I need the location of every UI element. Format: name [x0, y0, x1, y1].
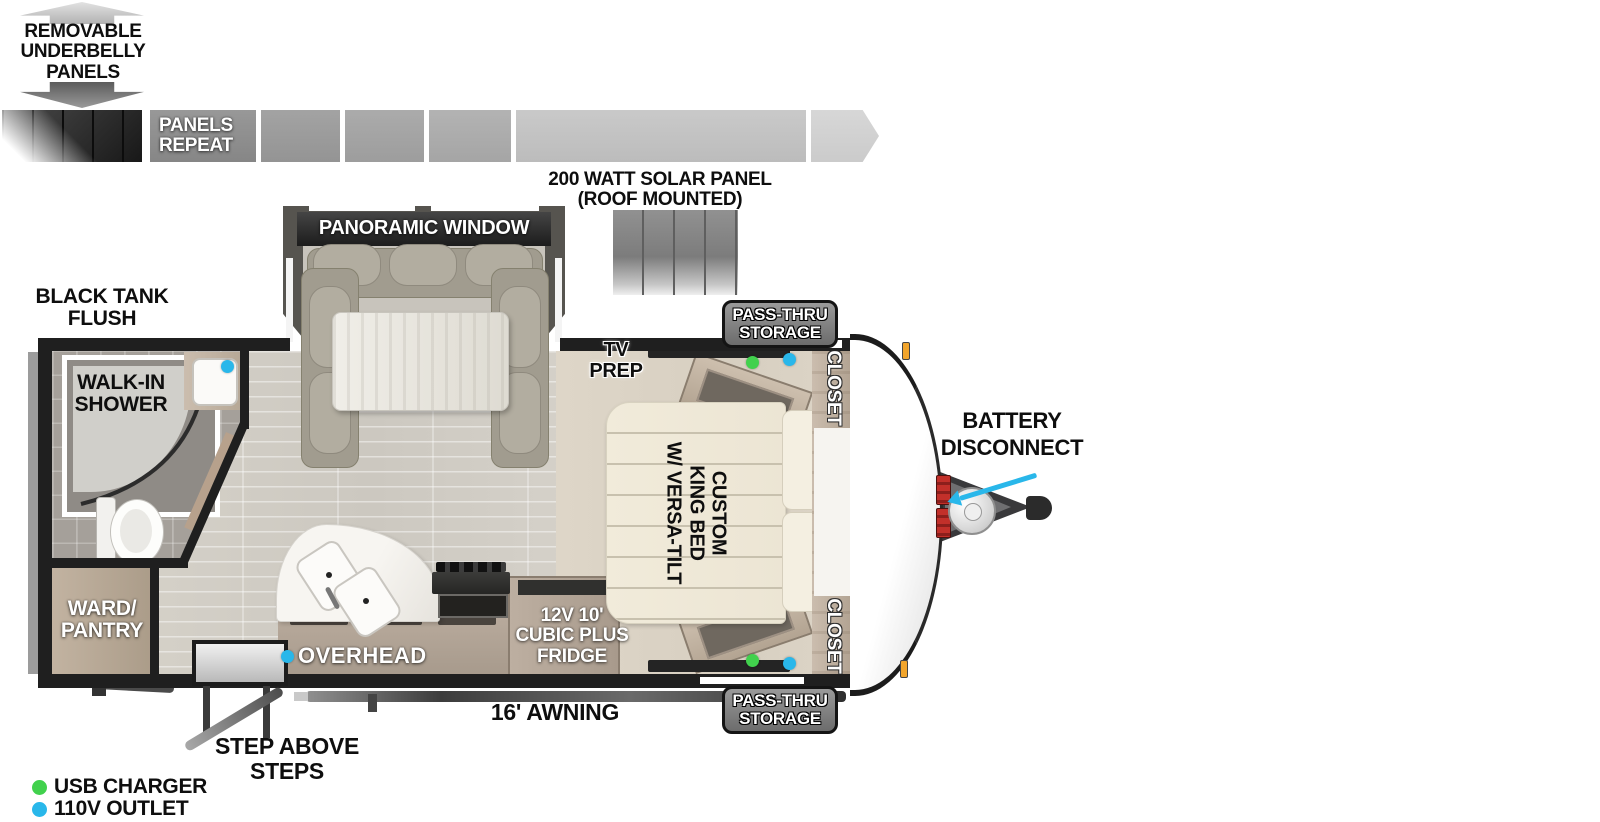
pass-thru-storage-badge-bottom: PASS-THRU STORAGE [722, 686, 838, 734]
awning-end-cap [294, 692, 308, 701]
bed-platform-edge [814, 428, 852, 596]
walk-in-shower-label: WALK-IN SHOWER [58, 372, 184, 417]
king-bed: CUSTOM KING BED W/ VERSA-TILT [606, 402, 786, 624]
110v-outlet-dot [783, 353, 796, 366]
fridge-top-panel [518, 580, 606, 595]
110v-outlet-dot [783, 657, 796, 670]
clearance-light [900, 660, 908, 678]
stove-knob-row [436, 562, 506, 572]
propane-valve [964, 503, 982, 521]
closet-label-top: CLOSET [818, 348, 848, 428]
rear-bumper [28, 352, 38, 674]
floorplan-diagram: REMOVABLE UNDERBELLY PANELS PANELS REPEA… [0, 0, 1600, 822]
underbelly-panel-long [516, 110, 806, 162]
underbelly-panel-arrow-end [811, 110, 879, 162]
hitch-coupler [1026, 496, 1052, 520]
110v-outlet-legend-label: 110V OUTLET [54, 798, 274, 820]
rear-wall [38, 338, 52, 688]
underbelly-down-arrow-icon [20, 82, 144, 108]
usb-charger-dot [746, 654, 759, 667]
awning-label: 16' AWNING [460, 700, 650, 725]
underbelly-panel-dark [2, 110, 142, 162]
panels-repeat-label: PANELS REPEAT [159, 116, 249, 157]
underbelly-panel [429, 110, 511, 162]
underbelly-panel [345, 110, 424, 162]
solar-panel-graphic [613, 210, 738, 295]
clearance-light [902, 342, 910, 360]
bath-vanity [184, 352, 244, 410]
underbelly-panel [261, 110, 340, 162]
usb-charger-dot [746, 356, 759, 369]
slideout-side-window [286, 258, 293, 342]
underbelly-label: REMOVABLE UNDERBELLY PANELS [14, 22, 152, 83]
king-bed-label: CUSTOM KING BED W/ VERSA-TILT [662, 408, 729, 618]
toilet-bowl [110, 499, 164, 565]
step-leg [263, 680, 270, 738]
sink-drain [363, 598, 369, 604]
fridge-label: 12V 10' CUBIC PLUS FRIDGE [503, 606, 641, 667]
pass-thru-storage-badge-top: PASS-THRU STORAGE [722, 300, 838, 348]
stove-cooktop [432, 572, 510, 594]
tv-prep-label: TV PREP [572, 340, 660, 383]
110v-outlet-dot [281, 650, 294, 663]
underbelly-panel-repeat: PANELS REPEAT [150, 110, 256, 162]
front-nose-cap [850, 334, 943, 696]
closet-label-bottom: CLOSET [818, 596, 848, 676]
baggage-door-marker-bottom [700, 677, 804, 684]
usb-charger-legend-dot [32, 780, 47, 795]
sink-drain [326, 572, 332, 578]
110v-outlet-legend-dot [32, 802, 47, 817]
dinette-table [332, 312, 509, 411]
step-above-steps-label: STEP ABOVE STEPS [181, 734, 393, 783]
oven-door [438, 594, 508, 618]
toilet-seat [120, 509, 152, 553]
110v-outlet-dot [221, 360, 234, 373]
panoramic-window-label: PANORAMIC WINDOW [297, 218, 551, 239]
black-tank-flush-label: BLACK TANK FLUSH [22, 286, 182, 331]
tv-bar [648, 660, 790, 672]
slideout: PANORAMIC WINDOW [283, 206, 565, 348]
bath-wall-vertical [240, 351, 249, 429]
step-foot [368, 694, 377, 712]
battery-disconnect-label: BATTERY DISCONNECT [927, 408, 1097, 462]
top-wall-left [40, 338, 290, 351]
slideout-window-sill [309, 206, 415, 211]
panoramic-window: PANORAMIC WINDOW [297, 212, 551, 246]
sofa-cushion [389, 244, 457, 286]
solar-panel-label: 200 WATT SOLAR PANEL (ROOF MOUNTED) [535, 170, 785, 211]
slideout-side-window [555, 258, 562, 342]
entry-step-platform [192, 640, 288, 686]
bath-wall-bottom [52, 558, 188, 568]
overhead-label: OVERHEAD [298, 644, 420, 668]
slideout-window-sill [431, 206, 539, 211]
ward-pantry-label: WARD/ PANTRY [50, 598, 154, 643]
